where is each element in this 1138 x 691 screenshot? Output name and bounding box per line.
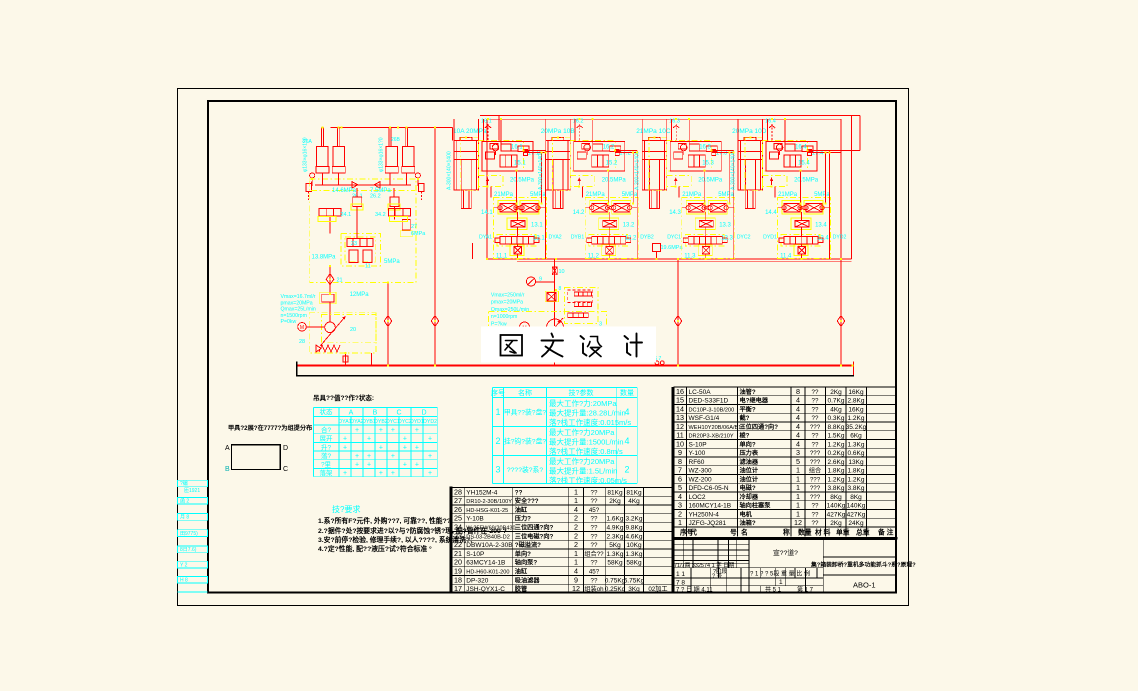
- svg-text:WSF-G1/4: WSF-G1/4: [689, 415, 720, 422]
- svg-text:A-300×140×1400: A-300×140×1400: [447, 151, 453, 190]
- svg-text:3.8Kg: 3.8Kg: [828, 485, 845, 492]
- svg-text:宣??道?: 宣??道?: [773, 548, 798, 557]
- svg-text:???: ???: [810, 476, 821, 483]
- svg-text:Vmax=250ml/r: Vmax=250ml/r: [491, 293, 525, 299]
- svg-text:滤油器: 滤油器: [739, 458, 759, 466]
- svg-text:????装?系?: ????装?系?: [507, 465, 543, 474]
- svg-text:1.3Kg: 1.3Kg: [607, 551, 624, 558]
- svg-text:RF60: RF60: [689, 459, 705, 466]
- svg-text:11: 11: [365, 264, 371, 270]
- svg-text:函 2: 函 2: [180, 497, 189, 504]
- svg-text:?编: ?编: [180, 480, 188, 487]
- svg-text:20: 20: [454, 558, 462, 567]
- svg-text:12.4: 12.4: [817, 236, 829, 242]
- svg-text:5MPa: 5MPa: [530, 192, 546, 198]
- svg-text:A: A: [349, 410, 354, 417]
- svg-text:+: +: [391, 470, 395, 477]
- svg-text:27: 27: [454, 496, 462, 505]
- svg-text:Vmax=16.7ml/r: Vmax=16.7ml/r: [281, 294, 316, 300]
- svg-text:3: 3: [495, 465, 500, 475]
- svg-text:4: 4: [796, 422, 800, 431]
- svg-text:+: +: [415, 427, 419, 434]
- svg-text:三位电磁?向?: 三位电磁?向?: [515, 532, 554, 540]
- svg-text:??: ??: [812, 511, 819, 518]
- svg-text:9: 9: [574, 575, 578, 584]
- svg-text:1: 1: [574, 487, 578, 496]
- svg-text:?磁溢流?: ?磁溢流?: [515, 541, 541, 549]
- svg-text:+: +: [391, 427, 395, 434]
- svg-text:1 1: 1 1: [676, 571, 685, 578]
- svg-text:B: B: [225, 466, 230, 473]
- svg-text:组装oh: 组装oh: [584, 585, 604, 593]
- svg-text:??: ??: [812, 441, 819, 448]
- svg-text:ABO-1: ABO-1: [853, 581, 876, 590]
- svg-text:1: 1: [796, 492, 800, 501]
- svg-text:21: 21: [454, 549, 462, 558]
- svg-text:???: ???: [810, 494, 821, 501]
- svg-text:油缸: 油缸: [515, 568, 528, 576]
- svg-text:???: ???: [810, 450, 821, 457]
- svg-text:??: ??: [812, 433, 819, 440]
- svg-text:13Kg: 13Kg: [848, 459, 864, 466]
- svg-text:+: +: [379, 427, 383, 434]
- svg-text:15: 15: [676, 396, 684, 405]
- svg-text:??: ??: [591, 577, 598, 584]
- svg-text:3Kg: 3Kg: [628, 586, 640, 593]
- svg-text:10: 10: [559, 269, 565, 275]
- svg-text:11.4: 11.4: [780, 254, 792, 260]
- svg-text:17.2: 17.2: [619, 151, 631, 157]
- svg-text:4: 4: [796, 404, 800, 413]
- svg-text:1: 1: [678, 518, 682, 527]
- svg-text:+: +: [391, 453, 395, 460]
- svg-text:1: 1: [574, 496, 578, 505]
- svg-text:总重: 总重: [856, 528, 870, 537]
- svg-text:??: ??: [591, 516, 598, 523]
- svg-text:15.4: 15.4: [798, 161, 810, 167]
- svg-text:16.1: 16.1: [511, 145, 523, 151]
- svg-text:20.5MPa: 20.5MPa: [510, 178, 535, 184]
- svg-text:A-300×140×1400: A-300×140×1400: [731, 151, 737, 190]
- svg-text:24Kg: 24Kg: [848, 520, 864, 527]
- svg-text:技?参数: 技?参数: [569, 388, 594, 397]
- svg-text:16.3: 16.3: [669, 119, 680, 125]
- svg-text:吊具??值??作?状态:: 吊具??值??作?状态:: [313, 393, 374, 402]
- svg-text:电?继电器: 电?继电器: [740, 397, 769, 405]
- svg-text:1.系?所有F?元件, 外购??7, 可靠??, 性能??;: 1.系?所有F?元件, 外购??7, 可靠??, 性能??;: [318, 516, 453, 525]
- svg-text:8日7.6): 8日7.6): [180, 547, 197, 553]
- svg-text:11: 11: [676, 431, 683, 440]
- svg-text:轴向柱塞泵: 轴向柱塞泵: [740, 502, 772, 510]
- svg-text:???: ???: [810, 424, 821, 431]
- svg-text:4: 4: [796, 439, 800, 448]
- svg-text:6Kg: 6Kg: [850, 433, 862, 440]
- svg-text:6MPa: 6MPa: [411, 231, 426, 237]
- svg-text:??: ??: [591, 498, 598, 505]
- svg-text:45?: 45?: [589, 569, 600, 576]
- svg-text:21MPa: 21MPa: [682, 192, 702, 198]
- svg-text:4: 4: [796, 413, 800, 422]
- svg-text:+: +: [343, 444, 347, 451]
- svg-text:1.8Kg: 1.8Kg: [848, 468, 865, 475]
- svg-text:8.8Kg: 8.8Kg: [828, 424, 845, 431]
- svg-text:26.2: 26.2: [370, 194, 381, 200]
- svg-text:16Kg: 16Kg: [848, 389, 864, 396]
- svg-text:15.2: 15.2: [606, 161, 618, 167]
- svg-text:油位计: 油位计: [740, 467, 759, 475]
- svg-text:DYD2: DYD2: [833, 235, 847, 241]
- svg-text:28: 28: [454, 487, 462, 496]
- svg-text:12MPa: 12MPa: [350, 292, 370, 298]
- svg-text:JSH-QYX1-C: JSH-QYX1-C: [466, 586, 505, 593]
- svg-text:B: B: [373, 410, 378, 417]
- svg-text:合?: 合?: [321, 425, 332, 434]
- svg-text:+: +: [428, 453, 432, 460]
- svg-text:??: ??: [591, 525, 598, 532]
- svg-text:A-300×140×1400: A-300×140×1400: [538, 151, 544, 190]
- svg-text:DYD2: DYD2: [423, 419, 437, 425]
- svg-text:14.3: 14.3: [669, 210, 681, 216]
- svg-text:三位四通?向?: 三位四通?向?: [515, 524, 554, 532]
- svg-text:?里: ?里: [321, 461, 332, 469]
- svg-text:油缸: 油缸: [515, 506, 528, 514]
- svg-text:427Kg: 427Kg: [847, 511, 866, 518]
- svg-text:备 注: 备 注: [877, 528, 894, 537]
- svg-text:HD-H60-K01-200: HD-H60-K01-200: [466, 570, 509, 576]
- svg-text:2: 2: [574, 523, 578, 532]
- svg-text:0.2Kg: 0.2Kg: [828, 450, 845, 457]
- svg-text:+: +: [355, 462, 359, 469]
- svg-text:1.8Kg: 1.8Kg: [828, 468, 845, 475]
- svg-text:1: 1: [796, 501, 800, 510]
- svg-text:技?要求: 技?要求: [332, 504, 360, 514]
- svg-text:??: ??: [591, 542, 598, 549]
- svg-text:??: ??: [812, 406, 819, 413]
- svg-text:+: +: [403, 436, 407, 443]
- svg-text:??: ??: [591, 560, 598, 567]
- svg-text:16.1: 16.1: [481, 119, 492, 125]
- svg-text:2: 2: [495, 436, 500, 446]
- svg-text:+: +: [379, 444, 383, 451]
- svg-text:3.安?前停?检验, 修理手续?, 以人????, 系统清洗: 3.安?前停?检验, 修理手续?, 以人????, 系统清洗?;: [318, 535, 472, 544]
- svg-text:挂?钩?装?盘?: 挂?钩?装?盘?: [504, 437, 547, 446]
- svg-text:田9775): 田9775): [180, 531, 198, 537]
- svg-text:4: 4: [574, 505, 578, 514]
- svg-text:8Kg: 8Kg: [850, 494, 862, 501]
- svg-text:8: 8: [559, 286, 562, 292]
- svg-text:12: 12: [794, 518, 802, 527]
- svg-text:月 8: 月 8: [180, 515, 189, 521]
- svg-text:n=1000rpm: n=1000rpm: [491, 314, 517, 320]
- svg-text:17: 17: [454, 584, 462, 593]
- svg-text:DYC1: DYC1: [667, 235, 681, 241]
- svg-text:0.6Kg: 0.6Kg: [848, 450, 865, 457]
- svg-text:YH152M-4: YH152M-4: [466, 489, 497, 496]
- svg-text:6: 6: [678, 474, 682, 483]
- svg-text:1: 1: [796, 474, 800, 483]
- svg-text:状态: 状态: [320, 407, 334, 416]
- svg-text:称: 称: [783, 528, 790, 537]
- svg-text:2: 2: [574, 514, 578, 523]
- svg-text:12.2: 12.2: [625, 236, 637, 242]
- svg-text:序号: 序号: [491, 388, 505, 397]
- svg-text:1.3Kg: 1.3Kg: [848, 441, 865, 448]
- svg-text:5MPa: 5MPa: [814, 192, 830, 198]
- svg-text:14.2: 14.2: [573, 210, 585, 216]
- svg-text:电机: 电机: [740, 510, 753, 518]
- svg-text:DBW10A-2-30B: DBW10A-2-30B: [466, 542, 512, 549]
- svg-text:数量: 数量: [798, 528, 812, 537]
- svg-text:匝1921: 匝1921: [184, 488, 200, 494]
- svg-text:0.3Kg: 0.3Kg: [828, 415, 845, 422]
- svg-text:WZ-200: WZ-200: [689, 476, 713, 483]
- svg-text:16.4: 16.4: [795, 145, 807, 151]
- svg-text:63MCY14-1B: 63MCY14-1B: [466, 560, 505, 567]
- svg-text:最大工作?力20MPa: 最大工作?力20MPa: [549, 456, 615, 466]
- svg-text:+: +: [355, 427, 359, 434]
- svg-text:21MPa: 21MPa: [494, 192, 514, 198]
- svg-text:0.75Kg: 0.75Kg: [605, 577, 626, 584]
- svg-text:H 8: H 8: [180, 578, 188, 584]
- svg-text:9: 9: [678, 448, 682, 457]
- svg-text:20.5MPa: 20.5MPa: [602, 178, 627, 184]
- svg-text:+: +: [367, 462, 371, 469]
- svg-text:pmax=20MPa: pmax=20MPa: [281, 300, 313, 306]
- svg-text:D: D: [421, 410, 426, 417]
- svg-text:???: ???: [810, 485, 821, 492]
- svg-text:+: +: [343, 436, 347, 443]
- svg-text:1.5Kg: 1.5Kg: [828, 433, 845, 440]
- svg-text:2: 2: [574, 540, 578, 549]
- svg-text:13.1: 13.1: [531, 223, 543, 229]
- svg-text:12.1: 12.1: [533, 236, 545, 242]
- svg-text:2: 2: [574, 531, 578, 540]
- svg-text:58Kg: 58Kg: [607, 560, 623, 567]
- svg-text:DYA1: DYA1: [479, 235, 492, 241]
- svg-text:油箱?: 油箱?: [740, 519, 756, 527]
- svg-text:0.7Kg: 0.7Kg: [828, 398, 845, 405]
- svg-text:安全???: 安全???: [515, 497, 539, 505]
- svg-text:YH250N-4: YH250N-4: [689, 511, 720, 518]
- svg-text:4: 4: [624, 407, 629, 417]
- svg-text:???: ???: [810, 459, 821, 466]
- svg-text:58Kg: 58Kg: [626, 560, 642, 567]
- svg-text:??: ??: [591, 489, 598, 496]
- svg-text:7 8: 7 8: [676, 580, 685, 587]
- svg-text:LOC2: LOC2: [689, 494, 706, 501]
- svg-text:Y 2: Y 2: [180, 562, 188, 568]
- svg-text:单重: 单重: [836, 528, 850, 537]
- svg-text:1.2Kg: 1.2Kg: [828, 476, 845, 483]
- svg-text:10Kg: 10Kg: [626, 542, 642, 549]
- svg-text:P=0kw: P=0kw: [281, 319, 297, 325]
- svg-text:4: 4: [796, 396, 800, 405]
- svg-text:甲具??装?盘?: 甲具??装?盘?: [504, 407, 547, 416]
- svg-text:7: 7: [678, 466, 682, 475]
- svg-text:n=1500rpm: n=1500rpm: [281, 313, 307, 319]
- svg-text:冷却器: 冷却器: [740, 493, 759, 501]
- svg-text:+: +: [355, 453, 359, 460]
- svg-text:3: 3: [678, 501, 682, 510]
- svg-text:2.6Kg: 2.6Kg: [828, 459, 845, 466]
- svg-text:4Kg: 4Kg: [628, 498, 640, 505]
- svg-text:11.2: 11.2: [588, 254, 600, 260]
- svg-text:1: 1: [796, 483, 800, 492]
- svg-text:19: 19: [454, 567, 462, 576]
- svg-text:名: 名: [741, 528, 748, 537]
- svg-text:??: ??: [812, 503, 819, 510]
- svg-text:12: 12: [572, 584, 580, 593]
- svg-text:8Kg: 8Kg: [830, 494, 842, 501]
- svg-text:1.3Kg: 1.3Kg: [626, 551, 643, 558]
- svg-text:吸油滤器: 吸油滤器: [515, 576, 541, 584]
- svg-text:2: 2: [624, 465, 629, 475]
- svg-text:16.4: 16.4: [765, 119, 776, 125]
- svg-text:15.1: 15.1: [514, 161, 526, 167]
- svg-text:5MPa: 5MPa: [384, 259, 400, 265]
- svg-text:4Kg: 4Kg: [830, 406, 842, 413]
- svg-text:A: A: [225, 445, 230, 452]
- svg-text:1: 1: [779, 579, 783, 586]
- svg-text:DP-320: DP-320: [466, 577, 488, 584]
- svg-text:5MPa: 5MPa: [622, 192, 638, 198]
- svg-text:2.8Kg: 2.8Kg: [848, 398, 865, 405]
- svg-text:9.8Kg: 9.8Kg: [626, 525, 643, 532]
- svg-text:02加工: 02加工: [648, 585, 667, 593]
- svg-text:3: 3: [796, 448, 800, 457]
- svg-text:代: 代: [689, 528, 697, 537]
- svg-text:427Kg: 427Kg: [827, 511, 846, 518]
- svg-text:截?: 截?: [740, 414, 750, 422]
- svg-text:1.2Kg: 1.2Kg: [848, 476, 865, 483]
- svg-text:12.3: 12.3: [721, 236, 733, 242]
- svg-text:WEH10Y20B/06A/B10: WEH10Y20B/06A/B10: [689, 425, 745, 431]
- svg-text:组合??: 组合??: [584, 550, 604, 558]
- svg-text:24.1: 24.1: [341, 212, 352, 218]
- svg-text:数量: 数量: [620, 388, 634, 397]
- svg-text:DFD-C6-05-N: DFD-C6-05-N: [689, 485, 729, 492]
- svg-text:DYA2: DYA2: [549, 235, 562, 241]
- svg-text:DYB2: DYB2: [640, 235, 654, 241]
- svg-text:C: C: [283, 466, 288, 473]
- svg-text:11.1: 11.1: [496, 254, 508, 260]
- svg-text:P=?kw: P=?kw: [491, 321, 507, 327]
- svg-text:+: +: [415, 462, 419, 469]
- svg-text:35.2Kg: 35.2Kg: [846, 424, 867, 431]
- svg-text:最大提升量:1500L/min: 最大提升量:1500L/min: [549, 436, 624, 446]
- svg-text:最大工作?力:20MPa: 最大工作?力:20MPa: [549, 398, 617, 408]
- svg-text:140Kg: 140Kg: [847, 503, 866, 510]
- svg-text:13: 13: [676, 413, 684, 422]
- svg-text:DS-03-2B40B-D2: DS-03-2B40B-D2: [466, 534, 510, 540]
- svg-text:??: ??: [591, 533, 598, 540]
- svg-text:26B: 26B: [391, 137, 401, 143]
- svg-text:28: 28: [299, 339, 305, 345]
- svg-text:17.3: 17.3: [716, 151, 728, 157]
- svg-text:13.4: 13.4: [815, 223, 827, 229]
- svg-text:DED-S33F1D: DED-S33F1D: [689, 398, 729, 405]
- svg-text:A-300×140×1400: A-300×140×1400: [635, 151, 641, 190]
- svg-text:4: 4: [574, 567, 578, 576]
- svg-text:+: +: [343, 470, 347, 477]
- svg-text:??: ??: [812, 415, 819, 422]
- svg-text:展开: 展开: [320, 435, 334, 443]
- svg-text:DR20P3-XB/210Y: DR20P3-XB/210Y: [689, 434, 734, 440]
- svg-text:20MPa 10D: 20MPa 10D: [732, 128, 767, 135]
- svg-text:Y-10B: Y-10B: [466, 516, 483, 523]
- svg-text:20: 20: [350, 327, 356, 333]
- svg-text:φ133×φ16×1?0: φ133×φ16×1?0: [379, 137, 385, 172]
- svg-text:21MPa: 21MPa: [586, 192, 606, 198]
- svg-text:8: 8: [796, 387, 800, 396]
- svg-text:落?: 落?: [321, 451, 332, 460]
- svg-text:26: 26: [454, 505, 462, 514]
- svg-text:号: 号: [730, 528, 737, 537]
- svg-text:材 料: 材 料: [815, 528, 831, 537]
- svg-text:落?栈工作速度:0.015m/s: 落?栈工作速度:0.015m/s: [549, 417, 631, 427]
- svg-text:1.2Kg: 1.2Kg: [848, 415, 865, 422]
- svg-text:20.5MPa: 20.5MPa: [698, 178, 723, 184]
- svg-text:1.6Kg: 1.6Kg: [607, 516, 624, 523]
- svg-text:27: 27: [411, 224, 417, 230]
- svg-text:12: 12: [676, 422, 684, 431]
- svg-text:13.3: 13.3: [719, 223, 731, 229]
- svg-text:共 5 1: 共 5 1: [765, 586, 782, 594]
- svg-text:5MPa: 5MPa: [718, 192, 734, 198]
- svg-text:落架: 落架: [320, 468, 334, 477]
- svg-text:压力?: 压力?: [515, 515, 531, 523]
- svg-text:4.?定?性能, 配??液压?试?符合标准 °: 4.?定?性能, 配??液压?试?符合标准 °: [318, 544, 432, 553]
- svg-text:1: 1: [495, 407, 500, 417]
- svg-text:10A 20MPa: 10A 20MPa: [453, 128, 487, 135]
- svg-text:DYD1: DYD1: [763, 235, 777, 241]
- svg-text:+: +: [403, 462, 407, 469]
- svg-text:16Kg: 16Kg: [848, 406, 864, 413]
- svg-text:落?栈工作速度:0.8m/s: 落?栈工作速度:0.8m/s: [549, 446, 623, 456]
- svg-text:6.75Kg: 6.75Kg: [624, 577, 645, 584]
- svg-text:11.3: 11.3: [684, 254, 696, 260]
- svg-text:4.6Kg: 4.6Kg: [626, 533, 643, 540]
- svg-text:1: 1: [796, 509, 800, 518]
- svg-text:5Kg: 5Kg: [609, 542, 621, 549]
- svg-text:WZ-300: WZ-300: [689, 468, 713, 475]
- svg-text:最大提升量:28.28L/min: 最大提升量:28.28L/min: [549, 408, 626, 418]
- svg-text:HD-HSG-K01-25: HD-HSG-K01-25: [466, 508, 508, 514]
- svg-text:D: D: [283, 445, 288, 452]
- svg-text:S-10P: S-10P: [466, 551, 484, 558]
- svg-text:DYB1: DYB1: [571, 235, 585, 241]
- svg-text:5: 5: [796, 457, 800, 466]
- svg-text:胶管: 胶管: [515, 585, 527, 593]
- svg-text:平衡?: 平衡?: [740, 405, 756, 413]
- svg-text:8: 8: [678, 457, 682, 466]
- svg-text:油位计: 油位计: [740, 475, 759, 483]
- svg-text:4.9Kg: 4.9Kg: [607, 525, 624, 532]
- svg-text:71/7酉 332574 1 字 日期: 71/7酉 332574 1 字 日期: [674, 561, 735, 569]
- svg-text:M: M: [300, 325, 304, 331]
- svg-text:1: 1: [796, 466, 800, 475]
- svg-text:1: 1: [574, 549, 578, 558]
- svg-text:16.3: 16.3: [699, 145, 711, 151]
- svg-text:JZFG-JQ281: JZFG-JQ281: [689, 520, 727, 527]
- svg-text:名称: 名称: [518, 388, 532, 397]
- svg-text:??: ??: [812, 389, 819, 396]
- svg-text:??: ??: [812, 398, 819, 405]
- svg-text:2.?据件?处?按要求进?以?与?防腐蚀?锈?理, 配?管件: 2.?据件?处?按要求进?以?与?防腐蚀?锈?理, 配?管件在-200 ?: [318, 526, 507, 535]
- svg-text:Y-100: Y-100: [689, 450, 706, 457]
- svg-text:16: 16: [676, 387, 684, 396]
- svg-text:最大工作?力20MPa: 最大工作?力20MPa: [549, 427, 615, 437]
